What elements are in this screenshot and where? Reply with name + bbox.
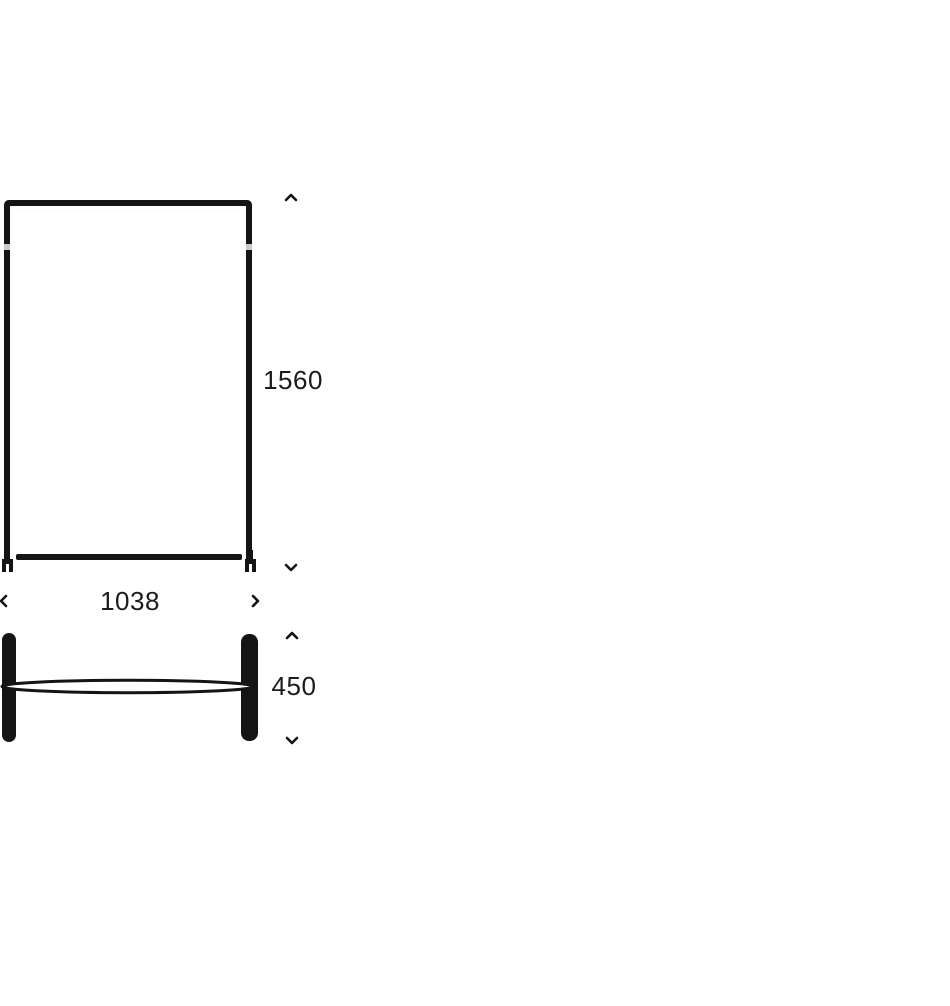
height-dimension-label: 1560 (258, 365, 328, 395)
dimension-drawing: 1560 1038 450 (0, 0, 950, 1006)
front-right-foot-icon (244, 550, 257, 572)
width-arrow-left-icon (0, 594, 8, 608)
width-arrow-right-icon (251, 594, 260, 608)
front-left-foot-icon (1, 550, 14, 572)
height-arrow-up-icon (284, 193, 298, 202)
front-view-bottom-edge (16, 554, 242, 560)
depth-dimension-label: 450 (259, 671, 329, 701)
depth-arrow-up-icon (285, 631, 299, 640)
front-view-outline (4, 200, 252, 560)
right-edge-joint-notch (246, 244, 252, 250)
width-dimension-label: 1038 (95, 586, 165, 616)
left-edge-joint-notch (4, 244, 10, 250)
height-arrow-down-icon (284, 563, 298, 572)
depth-arrow-down-icon (285, 736, 299, 745)
base-axle-bar (0, 677, 258, 696)
